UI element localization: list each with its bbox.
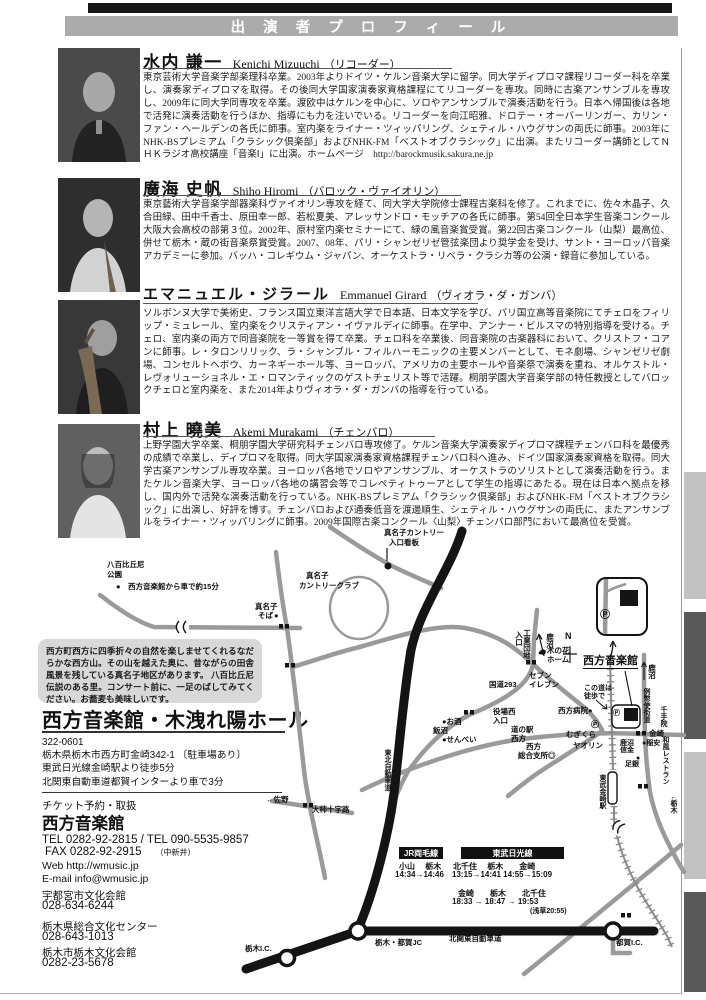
map-label-23: この道は — [584, 685, 612, 692]
map-label-24: 徒歩で — [584, 693, 605, 700]
manago-sign-dot — [385, 563, 392, 570]
map-label-0: 真名子カントリー — [384, 529, 444, 537]
venue-square-inset — [620, 590, 638, 606]
map-label-5: 西方音楽館から車で約15分 — [128, 583, 219, 591]
tobu-times-1: 13:15→14:41 14:55→15:09 — [452, 870, 552, 879]
map-label-51: 大柿十字路 — [312, 806, 350, 814]
map-label-50: ←佐野 — [266, 796, 289, 804]
venue-plot — [612, 671, 640, 728]
map-label-40: 千手院 — [660, 706, 667, 727]
map-label-11: 工業団地 — [523, 629, 531, 659]
map-label-36: むぎくら — [566, 731, 596, 739]
tobu-line-header: 東武日光線 — [461, 847, 564, 859]
map-label-47: 足銀 — [625, 761, 639, 768]
map-label-35: Ⓟ — [591, 721, 599, 729]
tochigi-tsuga-jct-circle — [350, 923, 366, 939]
jr-line-header: JR両毛線 — [399, 847, 443, 859]
map-label-43: 信金 — [620, 747, 634, 754]
jr-times: 14:34→14:46 — [395, 870, 444, 879]
map-label-34: 総合支所◎ — [518, 752, 556, 760]
map-label-21: 西方音楽館 — [583, 656, 638, 669]
map-label-4: ● — [116, 583, 121, 591]
map-label-29: 西方 — [511, 735, 526, 743]
map-label-22: 鹿沼 — [648, 664, 656, 679]
performer-photo-murakami — [58, 424, 140, 538]
map-label-17: ホーム — [547, 656, 569, 664]
map-label-33: 西方 — [526, 743, 541, 751]
map-label-2: 八百比丘尼 — [107, 561, 145, 569]
map-label-53: 栃木・都賀JC — [375, 939, 422, 947]
map-label-9: そば — [258, 612, 273, 620]
map-label-38: 東北自動車道 — [384, 749, 391, 791]
tobu-times-2: 18:33 → 18:47 → 19:53 — [452, 897, 538, 906]
map-label-15: ● — [538, 649, 543, 657]
map-label-19: イレブン — [529, 681, 559, 689]
performer-photo-mizuuchi — [58, 48, 140, 162]
kanazaki-station-rect — [608, 772, 617, 804]
map-label-56: Ⓟ — [600, 611, 610, 621]
map-label-14: N — [565, 632, 572, 641]
performer-photo-girard — [58, 300, 140, 414]
map-label-37: ヤオリン — [573, 742, 603, 750]
map-label-7: カントリークラブ — [299, 582, 359, 590]
map-label-1: 入口看板 — [389, 539, 419, 547]
map-label-45: 和風レストラン — [662, 736, 669, 785]
map-label-27: 入口 — [493, 717, 508, 725]
tobu-times-note: (浅草20:55) — [530, 906, 567, 916]
map-label-6: 真名子 — [306, 572, 329, 580]
tochigi-ic-circle — [280, 951, 295, 966]
flyer-page: 出 演 者 プ ロ フ ィ ー ル — [0, 0, 706, 1000]
venue-inset-box — [597, 578, 647, 635]
map-label-10: ● — [274, 612, 279, 620]
venue-square-main — [624, 708, 638, 721]
map-label-18: セブン — [529, 672, 552, 680]
performer-photo-hiromi — [58, 178, 140, 292]
map-label-28: 道の駅 — [511, 726, 534, 734]
map-label-30: ●お酒 — [442, 718, 462, 726]
map-label-42: 鹿沼 — [620, 740, 634, 747]
map-label-57: Ⓟ — [613, 710, 620, 717]
map-label-8: 真名子 — [255, 603, 278, 611]
map-label-32: ●せんべい — [442, 736, 477, 744]
railway-line — [610, 656, 672, 947]
map-label-48: 東武金崎駅 — [599, 774, 606, 809]
map-label-26: 役場西 — [493, 708, 516, 716]
map-label-44: ●稲安 — [642, 740, 660, 747]
map-label-54: 北関東自動車道 — [449, 935, 502, 943]
map-label-3: 公園 — [107, 571, 122, 579]
map-label-52: 栃木I.C. — [245, 945, 272, 953]
tsuga-ic-circle — [605, 923, 621, 939]
map-label-12: 入口 — [515, 631, 523, 646]
map-label-25: 西方病院● — [558, 707, 593, 715]
map-label-39: 例幣使街道 — [643, 688, 650, 723]
map-label-31: 飯沼 — [433, 727, 448, 735]
map-label-55: 都賀I.C. — [616, 939, 643, 947]
map-label-20: 国道293 — [489, 681, 517, 689]
map-label-49: ↓栃木 — [670, 796, 677, 814]
map-label-16: 木の花 — [547, 647, 570, 655]
